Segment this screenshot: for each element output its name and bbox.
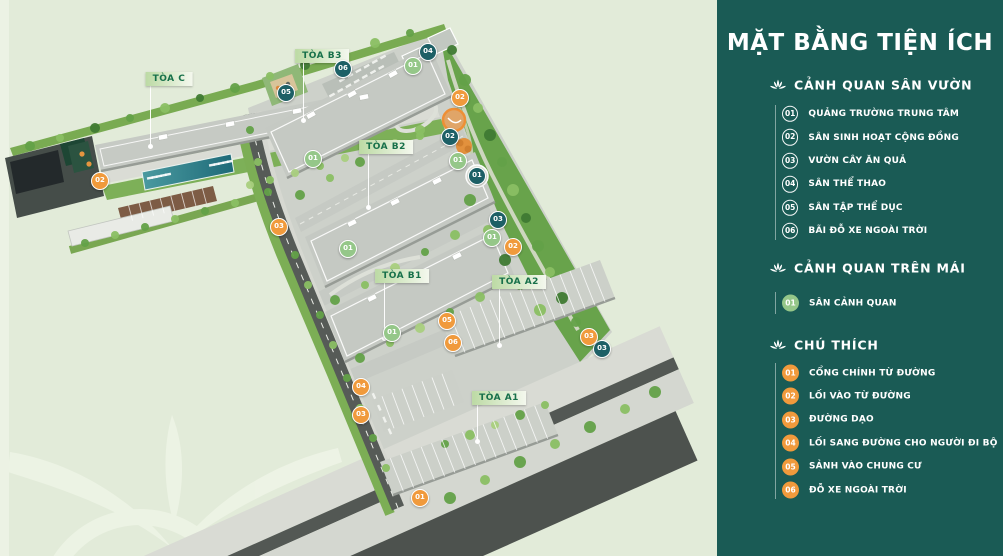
map-marker-green-01: 01 [404, 57, 422, 75]
legend-item-garden-04: 04SÂN THỂ THAO [782, 176, 886, 192]
map-marker-orange-03: 03 [270, 218, 288, 236]
legend-label: SÂN THỂ THAO [808, 179, 886, 189]
section-header-garden: CẢNH QUAN SÂN VƯỜN [769, 78, 972, 93]
legend-item-rooftop-01: 01SÂN CẢNH QUAN [782, 295, 897, 312]
legend-item-garden-01: 01QUẢNG TRƯỜNG TRUNG TÂM [782, 106, 959, 122]
map-marker-orange-06: 06 [444, 334, 462, 352]
legend-label: ĐƯỜNG DẠO [809, 415, 874, 425]
leader-line [499, 289, 500, 345]
map-overlay: TÒA CTÒA B3TÒA B2TÒA B1TÒA A2TÒA A105060… [0, 0, 717, 556]
lotus-icon [769, 262, 787, 275]
map-marker-teal-04: 04 [419, 43, 437, 61]
legend-label: ĐỖ XE NGOÀI TRỜI [809, 485, 907, 495]
section-divider [775, 105, 776, 240]
building-tag-tòa-b1: TÒA B1 [375, 269, 429, 283]
site-plan-page: TÒA CTÒA B3TÒA B2TÒA B1TÒA A2TÒA A105060… [0, 0, 1003, 556]
map-marker-green-01: 01 [339, 240, 357, 258]
legend-badge: 02 [782, 129, 798, 145]
section-title: CẢNH QUAN TRÊN MÁI [794, 261, 966, 276]
map-marker-orange-05: 05 [438, 312, 456, 330]
section-title: CẢNH QUAN SÂN VƯỜN [794, 78, 972, 93]
map-marker-orange-02: 02 [504, 238, 522, 256]
building-tag-tòa-c: TÒA C [146, 72, 193, 86]
legend-item-garden-02: 02SÂN SINH HOẠT CỘNG ĐỒNG [782, 129, 959, 145]
section-header-rooftop: CẢNH QUAN TRÊN MÁI [769, 261, 966, 276]
section-divider [775, 292, 776, 314]
map-marker-green-01: 01 [304, 150, 322, 168]
legend-badge: 01 [782, 106, 798, 122]
legend-badge: 05 [782, 199, 798, 215]
lotus-icon [769, 339, 787, 352]
map-marker-orange-03: 03 [580, 328, 598, 346]
map-marker-orange-03: 03 [352, 406, 370, 424]
legend-label: QUẢNG TRƯỜNG TRUNG TÂM [808, 109, 959, 119]
legend-badge: 01 [782, 295, 799, 312]
map-marker-teal-01: 01 [468, 167, 486, 185]
leader-line [368, 154, 369, 207]
map-marker-teal-02: 02 [441, 128, 459, 146]
section-title: CHÚ THÍCH [794, 338, 879, 353]
legend-badge: 03 [782, 411, 799, 428]
legend-label: BÃI ĐỖ XE NGOÀI TRỜI [808, 226, 927, 236]
legend-badge: 06 [782, 482, 799, 499]
legend-label: VƯỜN CÂY ĂN QUẢ [808, 156, 906, 166]
map-marker-orange-02: 02 [451, 89, 469, 107]
section-divider [775, 363, 776, 499]
section-header-notes: CHÚ THÍCH [769, 338, 879, 353]
map-marker-orange-01: 01 [411, 489, 429, 507]
map-marker-teal-06: 06 [334, 60, 352, 78]
map-marker-teal-03: 03 [489, 211, 507, 229]
map-marker-teal-05: 05 [277, 84, 295, 102]
map-marker-green-01: 01 [483, 229, 501, 247]
map-marker-orange-02: 02 [91, 172, 109, 190]
legend-label: SÂN CẢNH QUAN [809, 298, 897, 308]
map-marker-green-01: 01 [383, 324, 401, 342]
legend-item-garden-03: 03VƯỜN CÂY ĂN QUẢ [782, 153, 906, 169]
lotus-icon [769, 79, 787, 92]
legend-badge: 05 [782, 458, 799, 475]
legend-label: SÂN SINH HOẠT CỘNG ĐỒNG [808, 132, 959, 142]
legend-label: SẢNH VÀO CHUNG CƯ [809, 462, 922, 472]
building-tag-tòa-a2: TÒA A2 [492, 275, 546, 289]
legend-badge: 03 [782, 153, 798, 169]
legend-label: CỔNG CHÍNH TỪ ĐƯỜNG [809, 368, 935, 378]
leader-line [150, 86, 151, 146]
legend-badge: 01 [782, 365, 799, 382]
legend-label: SÂN TẬP THỂ DỤC [808, 203, 902, 213]
legend-label: LỐI SANG ĐƯỜNG CHO NGƯỜI ĐI BỘ [809, 438, 998, 448]
leader-line [303, 63, 304, 120]
legend-item-notes-05: 05SẢNH VÀO CHUNG CƯ [782, 458, 922, 475]
legend-badge: 04 [782, 176, 798, 192]
legend-item-garden-06: 06BÃI ĐỖ XE NGOÀI TRỜI [782, 223, 927, 239]
legend-label: LỐI VÀO TỪ ĐƯỜNG [809, 391, 911, 401]
legend-item-garden-05: 05SÂN TẬP THỂ DỤC [782, 199, 903, 215]
legend-item-notes-02: 02LỐI VÀO TỪ ĐƯỜNG [782, 388, 911, 405]
panel-title: MẶT BẰNG TIỆN ÍCH [717, 30, 1003, 56]
legend-badge: 04 [782, 435, 799, 452]
legend-badge: 06 [782, 223, 798, 239]
legend-item-notes-03: 03ĐƯỜNG DẠO [782, 411, 874, 428]
leader-line [477, 405, 478, 441]
building-tag-tòa-a1: TÒA A1 [472, 391, 526, 405]
legend-item-notes-06: 06ĐỖ XE NGOÀI TRỜI [782, 482, 907, 499]
map-marker-green-01: 01 [449, 152, 467, 170]
legend-badge: 02 [782, 388, 799, 405]
legend-item-notes-04: 04LỐI SANG ĐƯỜNG CHO NGƯỜI ĐI BỘ [782, 435, 998, 452]
legend-panel: MẶT BẰNG TIỆN ÍCH CẢNH QUAN SÂN VƯỜN01QU… [717, 0, 1003, 556]
legend-item-notes-01: 01CỔNG CHÍNH TỪ ĐƯỜNG [782, 365, 935, 382]
map-marker-orange-04: 04 [352, 378, 370, 396]
building-tag-tòa-b2: TÒA B2 [359, 140, 413, 154]
